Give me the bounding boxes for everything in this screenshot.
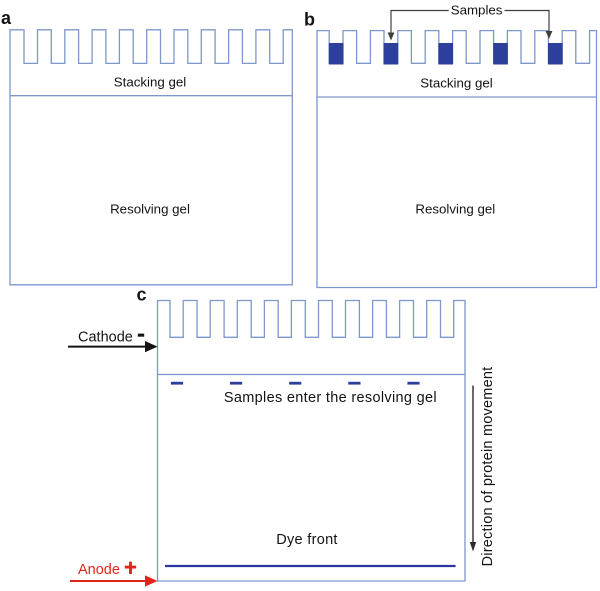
svg-text:Cathode: Cathode	[78, 329, 133, 345]
svg-text:a: a	[1, 8, 12, 28]
svg-text:Stacking gel: Stacking gel	[114, 75, 186, 90]
svg-text:Anode: Anode	[78, 562, 120, 578]
svg-text:Stacking gel: Stacking gel	[420, 75, 492, 90]
svg-text:Resolving gel: Resolving gel	[415, 202, 495, 217]
svg-text:b: b	[304, 10, 315, 30]
svg-text:c: c	[137, 285, 147, 305]
svg-text:Resolving gel: Resolving gel	[110, 202, 190, 217]
svg-text:Dye front: Dye front	[276, 532, 338, 548]
svg-text:Direction of protein movement: Direction of protein movement	[480, 367, 496, 567]
svg-text:Samples: Samples	[451, 3, 503, 18]
svg-text:Samples enter the resolving ge: Samples enter the resolving gel	[224, 390, 437, 406]
